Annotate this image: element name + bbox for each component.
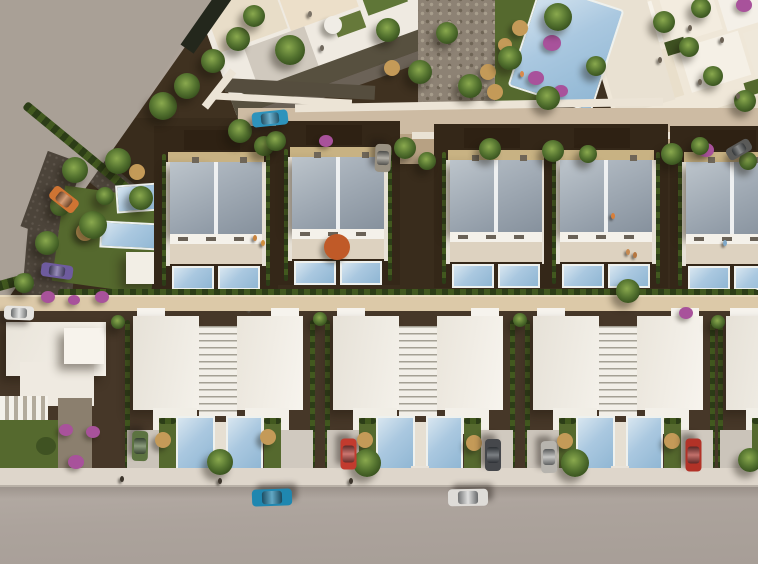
- roof-slab: [333, 316, 399, 410]
- person-figure: [736, 93, 740, 99]
- roof-slope: [734, 162, 758, 234]
- palm-tree: [353, 449, 381, 477]
- pool-terrace: [615, 422, 626, 472]
- chimney: [630, 155, 637, 161]
- white-car-bottom-road: [448, 488, 488, 506]
- parasol-umbrella: [466, 435, 482, 451]
- roof-slab: [237, 316, 303, 410]
- palm-tree: [458, 74, 482, 98]
- driveway: [306, 125, 362, 145]
- pool-terrace: [415, 422, 426, 472]
- left-villa-tower: [64, 328, 104, 364]
- silver-car-driveway: [541, 441, 558, 473]
- palm-tree: [542, 140, 564, 162]
- pool: [376, 416, 415, 472]
- roof-slope: [450, 160, 494, 232]
- palm-tree: [544, 3, 572, 31]
- palm-tree: [711, 315, 725, 329]
- flower-shrub: [543, 35, 561, 50]
- window: [596, 235, 606, 239]
- parasol-umbrella: [384, 60, 400, 76]
- roof-divider: [730, 162, 734, 234]
- person-figure: [698, 79, 702, 85]
- palm-tree: [243, 5, 265, 27]
- pool: [626, 416, 663, 472]
- palm-tree: [661, 143, 683, 165]
- window: [300, 232, 310, 236]
- roof-parapet: [290, 147, 386, 157]
- palm-tree: [579, 145, 597, 163]
- red-car-driveway: [340, 439, 356, 470]
- person-figure: [520, 71, 524, 77]
- palm-tree: [111, 315, 125, 329]
- roof-slope: [560, 160, 604, 232]
- garden-hedge: [159, 418, 176, 424]
- flower-shrub: [59, 424, 73, 436]
- person-figure: [633, 252, 637, 258]
- palm-tree: [228, 119, 252, 143]
- central-path: [0, 297, 758, 311]
- pool: [294, 261, 336, 285]
- palm-tree: [201, 49, 225, 73]
- palm-tree: [96, 187, 114, 205]
- flower-shrub: [41, 291, 55, 303]
- left-villa-bush: [36, 437, 56, 455]
- teal-car-bottom-road: [252, 488, 293, 506]
- palm-tree: [149, 92, 177, 120]
- window: [750, 237, 758, 241]
- parasol-umbrella: [557, 433, 573, 449]
- chimney: [362, 152, 369, 158]
- garden-hedge: [752, 418, 758, 424]
- parasol-umbrella: [357, 432, 373, 448]
- palm-tree: [653, 11, 675, 33]
- window: [458, 235, 468, 239]
- pool: [340, 261, 382, 285]
- window: [234, 237, 244, 241]
- person-figure: [723, 240, 727, 246]
- chimney: [520, 155, 527, 161]
- window: [694, 237, 704, 241]
- palm-tree: [536, 86, 560, 110]
- palm-tree: [14, 273, 34, 293]
- chimney: [192, 157, 199, 163]
- palm-tree: [691, 137, 709, 155]
- flower-shrub: [68, 295, 80, 305]
- roof-slab: [726, 316, 758, 410]
- person-figure: [120, 476, 124, 482]
- palm-tree: [436, 22, 458, 44]
- window: [624, 235, 634, 239]
- palm-tree: [513, 313, 527, 327]
- flower-shrub: [86, 426, 100, 438]
- teal-car-top-road: [251, 109, 288, 128]
- green-car-driveway: [132, 431, 149, 461]
- dark-gray-car-driveway: [485, 439, 501, 471]
- flower-shrub: [528, 71, 544, 85]
- terrace: [450, 242, 542, 262]
- garden-hedge: [359, 418, 376, 424]
- parasol-umbrella: [512, 20, 528, 36]
- flower-shrub: [68, 455, 84, 469]
- roof-slab: [637, 316, 703, 410]
- roof-slope: [170, 162, 214, 234]
- flower-shrub: [736, 0, 752, 12]
- person-figure: [349, 478, 353, 484]
- window: [206, 237, 216, 241]
- parasol-umbrella: [487, 84, 503, 100]
- chimney: [240, 157, 247, 163]
- flower-shrub: [319, 135, 333, 147]
- window: [178, 237, 188, 241]
- window: [356, 232, 366, 236]
- driveway: [574, 128, 630, 148]
- roof-divider: [604, 160, 608, 232]
- roof-divider: [336, 157, 340, 229]
- palm-tree: [738, 448, 758, 472]
- roof-parapet: [168, 152, 264, 162]
- window: [568, 235, 578, 239]
- pool: [562, 264, 604, 288]
- palm-tree: [703, 66, 723, 86]
- palm-tree: [226, 27, 250, 51]
- scene-canvas: [0, 0, 758, 564]
- gray-pickup: [375, 144, 392, 173]
- pool: [688, 266, 730, 290]
- palm-tree: [35, 231, 59, 255]
- lot-hedge: [266, 154, 270, 286]
- palm-tree: [207, 449, 233, 475]
- road-shade: [0, 487, 758, 499]
- chimney: [314, 152, 321, 158]
- window: [514, 235, 524, 239]
- palm-tree: [616, 279, 640, 303]
- roof-slope: [292, 157, 336, 229]
- roof-slope: [498, 160, 542, 232]
- person-figure: [261, 240, 265, 246]
- garden-hedge: [464, 418, 481, 424]
- palm-tree: [586, 56, 606, 76]
- terrace: [686, 244, 758, 264]
- roof-parapet: [558, 150, 654, 160]
- pool: [498, 264, 540, 288]
- roof-divider: [214, 162, 218, 234]
- parasol-umbrella: [664, 433, 680, 449]
- staircase: [218, 326, 237, 416]
- person-figure: [253, 235, 257, 241]
- palm-tree: [275, 35, 305, 65]
- staircase: [199, 326, 218, 416]
- flower-shrub: [95, 291, 109, 303]
- palm-tree: [62, 157, 88, 183]
- side-wall: [652, 160, 656, 264]
- palm-tree: [376, 18, 400, 42]
- palm-tree: [479, 138, 501, 160]
- person-figure: [688, 25, 692, 31]
- parasol-umbrella: [155, 432, 171, 448]
- parasol-umbrella: [480, 64, 496, 80]
- red-car-driveway: [685, 439, 701, 472]
- window: [486, 235, 496, 239]
- side-wall: [262, 162, 266, 266]
- lot-hedge: [656, 152, 660, 284]
- roof-slab: [533, 316, 599, 410]
- person-figure: [218, 478, 222, 484]
- parasol-umbrella: [324, 234, 350, 260]
- palm-tree: [679, 37, 699, 57]
- pool: [452, 264, 494, 288]
- roof-slope: [218, 162, 262, 234]
- palm-tree: [418, 152, 436, 170]
- palm-tree: [79, 211, 107, 239]
- person-figure: [320, 45, 324, 51]
- left-villa-pergola: [0, 396, 48, 422]
- roof-slab: [133, 316, 199, 410]
- chimney: [472, 155, 479, 161]
- person-figure: [611, 213, 615, 219]
- roof-slope: [608, 160, 652, 232]
- palm-tree: [408, 60, 432, 84]
- garden-hedge: [664, 418, 681, 424]
- palm-tree: [313, 312, 327, 326]
- pool: [172, 266, 214, 290]
- garden-strip: [264, 418, 281, 474]
- person-figure: [658, 57, 662, 63]
- palm-tree: [266, 131, 286, 151]
- palm-tree: [105, 148, 131, 174]
- side-wall: [384, 157, 388, 261]
- roof-slab: [437, 316, 503, 410]
- person-figure: [720, 37, 724, 43]
- terrace: [170, 244, 262, 264]
- parasol-umbrella: [324, 16, 342, 34]
- flower-shrub: [679, 307, 693, 319]
- staircase: [618, 326, 637, 416]
- garden-hedge: [264, 418, 281, 424]
- palm-tree: [129, 186, 153, 210]
- white-car-villa: [4, 305, 34, 320]
- palm-tree: [174, 73, 200, 99]
- pool: [426, 416, 463, 472]
- person-figure: [626, 249, 630, 255]
- palm-tree: [561, 449, 589, 477]
- staircase: [599, 326, 618, 416]
- person-figure: [308, 11, 312, 17]
- chimney: [708, 157, 715, 163]
- garden-hedge: [559, 418, 576, 424]
- palm-tree: [394, 137, 416, 159]
- pool: [218, 266, 260, 290]
- pool: [734, 266, 758, 290]
- terrace: [560, 242, 652, 262]
- parasol-umbrella: [260, 429, 276, 445]
- staircase: [418, 326, 437, 416]
- roof-slope: [686, 162, 730, 234]
- palm-tree: [498, 46, 522, 70]
- staircase: [399, 326, 418, 416]
- roof-divider: [494, 160, 498, 232]
- parasol-umbrella: [129, 164, 145, 180]
